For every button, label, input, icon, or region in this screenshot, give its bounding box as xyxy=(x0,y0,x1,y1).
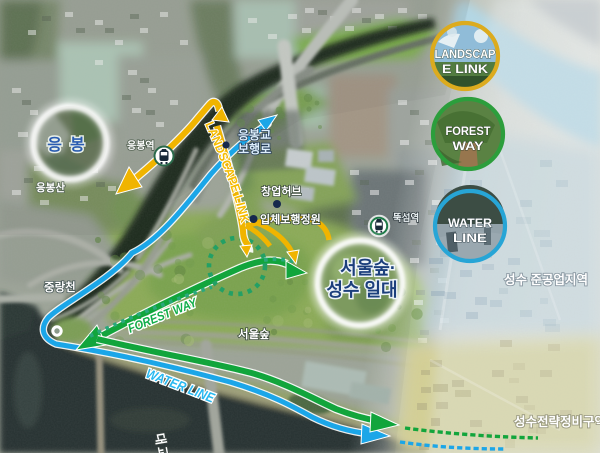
svg-text:E LINK: E LINK xyxy=(442,62,488,76)
svg-text:창업허브: 창업허브 xyxy=(261,184,301,198)
svg-text:FOREST: FOREST xyxy=(446,124,492,138)
svg-text:성수전략정비구역: 성수전략정비구역 xyxy=(514,414,600,429)
svg-text:LANDSCAP: LANDSCAP xyxy=(435,47,496,61)
svg-text:서울숲: 서울숲 xyxy=(238,327,270,341)
svg-text:성수 일대: 성수 일대 xyxy=(326,280,397,300)
svg-text:성수 준공업지역: 성수 준공업지역 xyxy=(504,272,588,287)
svg-text:응봉: 응봉 xyxy=(47,136,92,154)
svg-text:WAY: WAY xyxy=(453,139,484,153)
svg-text:중랑천: 중랑천 xyxy=(44,280,76,294)
svg-text:입체보행정원: 입체보행정원 xyxy=(260,212,321,226)
svg-text:보행로: 보행로 xyxy=(238,141,271,156)
svg-text:LINE: LINE xyxy=(453,231,487,245)
svg-text:응봉산: 응봉산 xyxy=(36,181,65,194)
svg-text:WATER: WATER xyxy=(448,216,492,230)
svg-text:뚝섬역: 뚝섬역 xyxy=(393,212,419,224)
svg-text:응봉교: 응봉교 xyxy=(238,127,271,142)
svg-text:서울숲·: 서울숲· xyxy=(340,258,396,278)
svg-text:응봉역: 응봉역 xyxy=(127,139,155,152)
